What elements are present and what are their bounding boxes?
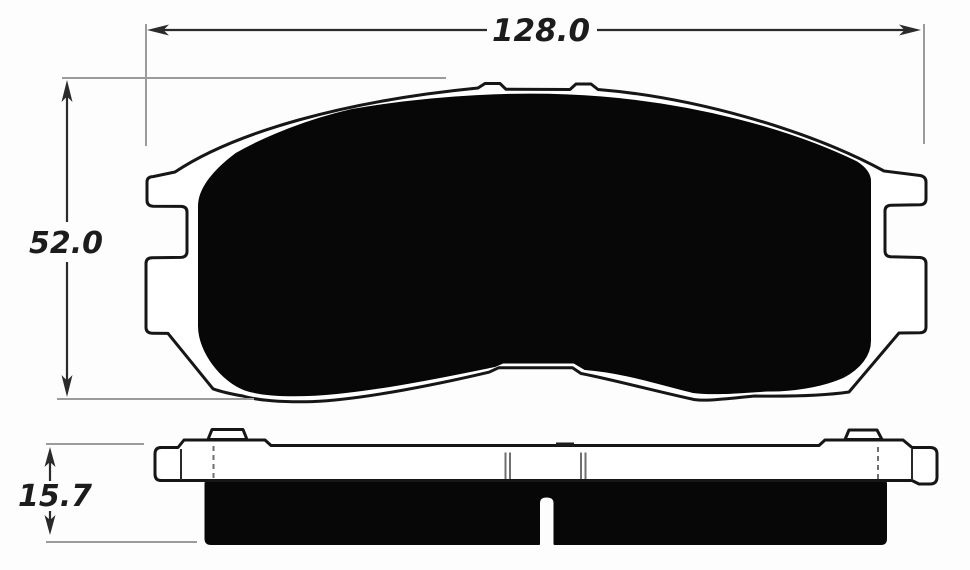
front-friction-material [199,95,870,396]
thickness-dimension-label: 15.7 [18,479,92,514]
side-view [155,430,937,545]
side-friction-material [206,483,887,544]
side-right-clip-tab [845,430,882,440]
side-left-clip-tab [208,430,247,440]
front-view [146,84,926,402]
width-dimension-label: 128.0 [492,13,590,49]
technical-drawing: 128.0 52.0 15.7 [0,0,970,570]
side-backing-plate-outline [155,440,937,484]
height-dimension-label: 52.0 [29,226,103,261]
drawing-canvas: 128.0 52.0 15.7 [0,0,970,570]
